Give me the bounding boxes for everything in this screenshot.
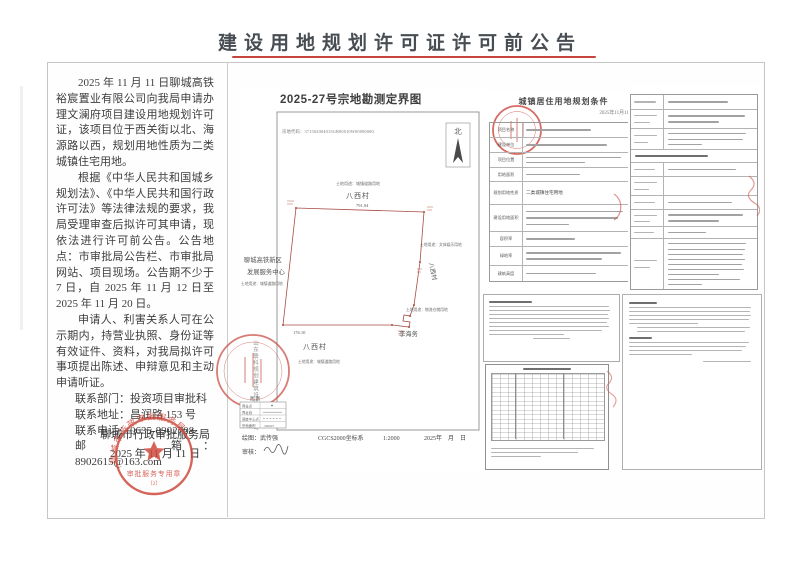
table-row <box>631 239 757 289</box>
boundary-vertex-dots <box>282 207 425 328</box>
conditions-continuation-document <box>628 86 760 286</box>
illegible-footer-line <box>533 338 571 339</box>
illegible-text-line <box>629 342 749 343</box>
org-west-line1: 聊城高铁新区 <box>244 255 282 264</box>
conditions-row: 项目名称 <box>490 123 637 138</box>
table-row <box>631 110 757 129</box>
illegible-text-line <box>526 211 623 213</box>
conditions-row-label: 建设用地面积 <box>490 205 523 231</box>
announcement-scan-page: 建设用地规划许可证许可前公告 2025 年 11 月 11 日聊城高铁裕宸置业有… <box>0 0 800 566</box>
illegible-text-line <box>526 252 621 254</box>
scan-edge-shadow <box>20 86 23 330</box>
illegible-heading-line <box>489 301 532 303</box>
conditions-row: 建筑高度 <box>490 266 637 281</box>
stamp-fragment <box>611 192 625 222</box>
neighbor-southeast-label: 李海务 <box>399 329 419 338</box>
illegible-label <box>634 101 656 102</box>
illegible-text-line <box>668 139 743 140</box>
north-arrow-icon: 北 <box>446 123 470 167</box>
table-row <box>631 210 757 227</box>
illegible-heading-line <box>635 155 708 157</box>
illegible-label <box>634 232 654 233</box>
illegible-text-line <box>489 318 609 319</box>
conditions-row: 绿地率 <box>490 247 637 266</box>
survey-map-document: 2025-27号宗地勘测定界图 宗地代码：371502004015GB00010… <box>240 88 485 472</box>
illegible-label <box>634 169 655 170</box>
illegible-text-line <box>489 322 607 323</box>
illegible-label <box>634 142 648 143</box>
illegible-label <box>634 182 657 183</box>
legend-row3-label: 调查中心点 <box>242 416 260 421</box>
coordinate-grid <box>491 373 605 441</box>
illegible-text-line <box>489 326 609 327</box>
seal-star-icon <box>144 441 165 461</box>
table-row <box>631 129 757 150</box>
conditions-row: 容积率 <box>490 232 637 247</box>
illegible-label <box>634 189 649 190</box>
checker-signature-scribble <box>264 444 288 454</box>
illegible-text-line <box>629 323 698 324</box>
illegible-label <box>634 260 657 261</box>
stamp-fragment <box>744 174 760 218</box>
landuse-southeast-label: 土地用途：物流仓储用地 <box>406 307 448 312</box>
legend-row2-label: 界址线 <box>242 410 253 415</box>
illegible-text-line <box>526 238 575 240</box>
notes-document <box>483 294 620 362</box>
village-east-label: 八西村 <box>427 262 439 281</box>
illegible-note-line <box>491 456 541 457</box>
conditions-row: 项目位置 <box>490 153 637 168</box>
landuse-south-label: 土地用途：城镇道路用地 <box>298 359 340 364</box>
illegible-grid-title <box>523 368 572 370</box>
illegible-text-line <box>526 144 607 146</box>
landuse-west-label: 土地用途：城镇道路用地 <box>241 281 283 286</box>
announcement-body: 2025 年 11 月 11 日聊城高铁裕宸置业有限公司向我局申请办理文澜府项目… <box>56 76 214 512</box>
illegible-label <box>634 267 650 268</box>
table-row <box>631 163 757 177</box>
illegible-label <box>634 202 655 203</box>
illegible-label <box>634 135 657 136</box>
illegible-text-line <box>526 129 591 131</box>
illegible-text-line <box>629 311 750 312</box>
parcel-code: 宗地代码：371502004015GB00010W00000000 <box>282 128 374 135</box>
illegible-text-line <box>629 319 749 320</box>
section-heading-row <box>631 150 757 163</box>
illegible-text-line <box>629 307 751 308</box>
illegible-text-line <box>668 169 736 171</box>
official-seal-stamp: 聊城市行政审批服务局 审批服务专用章 （2） <box>109 411 199 501</box>
map-footer: 绘图：武传强 CGCS2000坐标系 1:2000 2025年 月 日 审核： <box>242 434 466 456</box>
conditions-row-label: 容积率 <box>490 232 523 246</box>
edge-south-length: 176.10 <box>293 330 306 335</box>
illegible-text-line <box>668 144 702 145</box>
conditions-row-label: 项目名称 <box>490 123 523 137</box>
edge-north-length: 791.04 <box>356 203 369 208</box>
table-row <box>631 196 757 210</box>
map-checked-by: 审核： <box>242 448 260 456</box>
illegible-note-line <box>491 448 594 449</box>
announcement-paragraph-1: 2025 年 11 月 11 日聊城高铁裕宸置业有限公司向我局申请办理文澜府项目… <box>56 76 214 171</box>
legend-row4-label: 宗地面积 <box>242 423 256 428</box>
illegible-heading-line <box>629 302 657 304</box>
illegible-text-line <box>489 310 610 311</box>
illegible-signature-line <box>703 361 751 362</box>
map-crs: CGCS2000坐标系 <box>318 434 364 442</box>
seal-number: （2） <box>147 480 161 487</box>
grid-section-line <box>563 373 564 439</box>
conditions-row-label: 建筑高度 <box>490 266 523 281</box>
announcement-paragraph-2: 根据《中华人民共和国城乡规划法》、《中华人民共和国行政许可法》等法律法规的要求，… <box>56 171 214 313</box>
conditions-row: 建设单位 <box>490 138 637 153</box>
illegible-text-line <box>629 350 742 351</box>
conditions-row-label: 绿地率 <box>490 247 523 265</box>
conditions-row-label: 项目位置 <box>490 153 523 167</box>
planning-conditions-document: 城镇居住用地规划条件 2025年11月11日 项目名称 建设单位 项目位置 <box>485 92 642 290</box>
org-west-line2: 发展服务中心 <box>247 267 285 276</box>
survey-map-drawing: 宗地代码：371502004015GB00010W00000000 北 <box>240 88 485 472</box>
svg-text:聊城市行政审批服务局: 聊城市行政审批服务局 <box>109 411 188 464</box>
conditions-row-label: 建设单位 <box>490 138 523 152</box>
landuse-north-label: 土地用途：城镇道路用地 <box>336 180 380 186</box>
legend-row1-label: 界址点 <box>242 403 253 408</box>
landuse-east-label: 土地用途：文体娱乐用地 <box>420 242 462 247</box>
illegible-list-line <box>637 331 745 332</box>
illegible-text-line <box>526 174 580 176</box>
map-drawn-by: 绘图：武传强 <box>242 434 278 442</box>
grid-section-line <box>515 373 516 439</box>
illegible-text-line <box>668 220 719 221</box>
illegible-heading-line <box>629 337 652 339</box>
seal-arc-text: 聊城市行政审批服务局 <box>109 411 188 464</box>
illegible-text-line <box>489 306 609 307</box>
illegible-text-line <box>489 314 608 315</box>
seal-label: 审批服务专用章 <box>127 469 182 478</box>
illegible-label <box>634 122 650 123</box>
legend-title: 图 例 <box>250 395 261 402</box>
conditions-row: 用地面积 <box>490 168 637 182</box>
legend-row4-value: 320647 <box>264 424 274 428</box>
village-south-label: 八西村 <box>303 342 327 351</box>
illegible-text-line <box>526 273 596 275</box>
continuation-table <box>630 94 758 290</box>
announcement-paragraph-3: 申请人、利害关系人可在公示期内，持营业执照、身份证等有效证件、资料，对我局拟许可… <box>56 313 214 392</box>
illegible-text-line <box>668 101 728 103</box>
illegible-text-line <box>668 115 745 117</box>
illegible-text-line <box>668 121 719 123</box>
conditions-row-label: 规划用地性质 <box>490 182 523 204</box>
map-scale: 1:2000 <box>383 436 400 442</box>
north-label: 北 <box>454 127 462 136</box>
illegible-text-line <box>489 330 602 331</box>
illegible-text-line <box>668 202 732 204</box>
table-row <box>631 227 757 239</box>
illegible-text-line <box>668 232 706 234</box>
map-date: 2025年 月 日 <box>424 434 466 442</box>
illegible-text-line <box>629 346 746 347</box>
table-row <box>631 177 757 196</box>
stamp-fragment <box>603 369 617 409</box>
illegible-text-line <box>526 258 602 260</box>
illegible-label <box>634 115 657 116</box>
illegible-text-line <box>526 224 569 226</box>
village-north-label: 八西村 <box>346 191 370 200</box>
illegible-list-line <box>637 327 750 328</box>
illegible-note-line <box>491 452 578 453</box>
parcel-boundary <box>283 208 424 327</box>
legend-table: 图 例 界址点 界址线 调查中心点 宗地面积 320647 <box>240 395 286 428</box>
conditions-row-label: 用地面积 <box>490 168 523 181</box>
contact-department: 联系部门：投资项目审批科 <box>56 392 214 408</box>
coordinate-table-document <box>485 364 609 470</box>
page-title: 建设用地规划许可证许可前公告 <box>0 28 800 55</box>
illegible-text-line <box>668 214 743 215</box>
table-row <box>631 95 757 110</box>
illegible-text-line <box>489 334 564 335</box>
illegible-text-line <box>668 133 746 134</box>
illegible-text-line <box>526 217 618 219</box>
title-red-underline <box>232 56 596 58</box>
illegible-text-line <box>629 315 751 316</box>
other-requirements-document <box>622 294 762 470</box>
illegible-text-line <box>629 354 692 355</box>
